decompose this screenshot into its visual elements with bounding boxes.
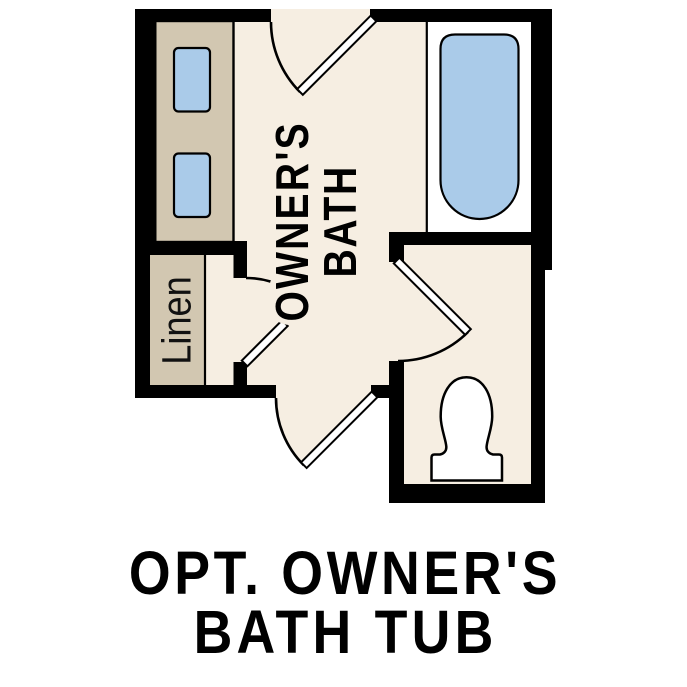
svg-text:Linen: Linen [154, 276, 200, 365]
svg-text:OPT. OWNER'S: OPT. OWNER'S [129, 540, 561, 608]
svg-text:BATH TUB: BATH TUB [194, 599, 498, 667]
svg-text:OWNER'S: OWNER'S [267, 121, 319, 321]
svg-text:BATH: BATH [315, 165, 367, 277]
